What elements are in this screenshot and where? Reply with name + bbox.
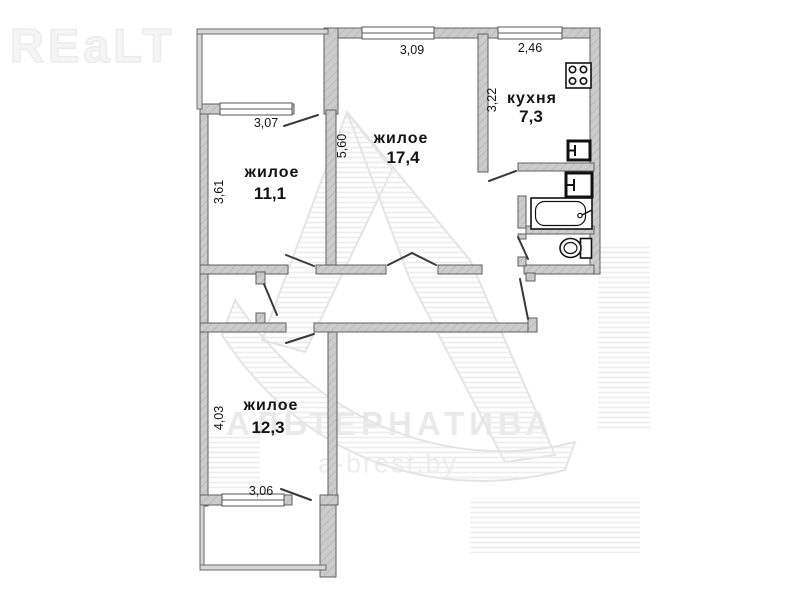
watermark-stripes [598, 245, 650, 430]
wall-segment [324, 28, 338, 114]
balcony-wall [197, 29, 328, 34]
wall-segment [200, 104, 208, 506]
wall-segment [200, 265, 288, 274]
floorplan-canvas: REaLT АЛЬТЕРНАТИВА a-brest.by [0, 0, 800, 599]
wall-segment [316, 265, 386, 274]
entrance-door-leaf [520, 279, 528, 319]
toilet-icon [560, 239, 592, 259]
dim-living1-height: 3,61 [212, 180, 226, 204]
wall-segment [256, 272, 265, 284]
wall-segment [518, 257, 526, 266]
wall-segment [200, 323, 286, 332]
kitchen-sink-icon [568, 141, 590, 160]
wall-segment [518, 163, 594, 171]
door-leaf [284, 115, 318, 126]
dim-kitchen-width: 2,46 [518, 41, 542, 55]
balcony-wall [200, 505, 204, 569]
window-icon [498, 27, 562, 39]
door-leaf [518, 237, 528, 259]
room-area-kitchen: 7,3 [519, 107, 543, 127]
wall-segment [320, 495, 338, 505]
room-area-living3: 12,3 [251, 418, 284, 438]
closet-door-leaf [264, 284, 277, 315]
watermark-stripes [205, 433, 260, 488]
balcony-wall [197, 29, 202, 109]
room-area-living1: 11,1 [254, 184, 286, 204]
dim-kitchen-height: 3,22 [485, 88, 499, 112]
wall-segment [438, 265, 482, 274]
bathtub-icon [531, 198, 592, 229]
wall-segment [314, 323, 530, 332]
room-label-living1: жилое [245, 164, 300, 182]
room-label-living3: жилое [244, 397, 299, 415]
wall-segment [528, 318, 537, 332]
room-label-living2: жилое [374, 130, 429, 148]
room-area-living2: 17,4 [386, 148, 419, 168]
dim-living3-height: 4,03 [212, 406, 226, 430]
dim-living2-height: 5,60 [335, 134, 349, 158]
dim-living2-width: 3,09 [400, 43, 424, 57]
door-leaf [489, 171, 516, 181]
balcony-wall [200, 565, 326, 570]
stove-icon [566, 63, 591, 88]
watermark-stripes [470, 498, 640, 553]
bath-sink-icon [566, 173, 592, 197]
dim-living3-width: 3,06 [249, 484, 273, 498]
window-icon [220, 103, 292, 115]
floorplan-drawing [0, 0, 800, 599]
wall-segment [518, 196, 526, 228]
wall-segment [256, 313, 265, 323]
wall-segment [328, 332, 337, 504]
wall-segment [526, 273, 535, 281]
window-icon [362, 27, 434, 39]
dim-living1-width: 3,07 [254, 116, 278, 130]
room-label-kitchen: кухня [507, 90, 557, 108]
